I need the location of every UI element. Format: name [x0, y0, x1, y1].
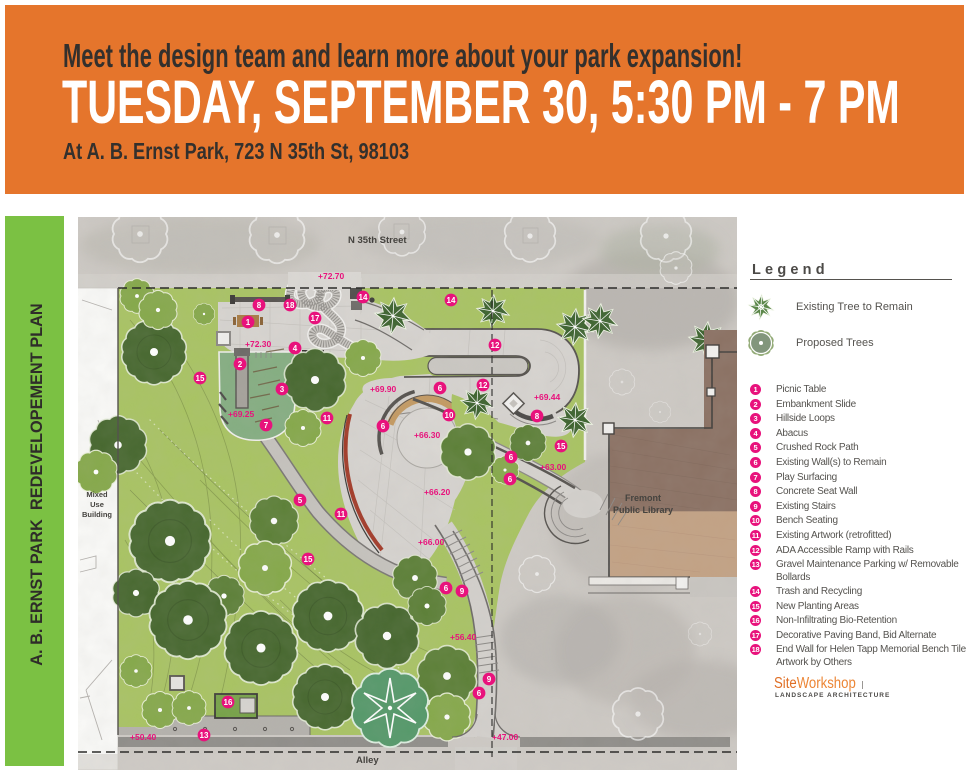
- svg-text:17: 17: [311, 314, 320, 323]
- svg-text:10: 10: [445, 411, 454, 420]
- svg-text:7: 7: [264, 421, 269, 430]
- svg-text:9: 9: [487, 675, 492, 684]
- svg-text:15: 15: [304, 555, 313, 564]
- svg-text:8: 8: [257, 301, 262, 310]
- svg-text:Public Library: Public Library: [613, 505, 673, 515]
- svg-text:1: 1: [246, 318, 251, 327]
- svg-text:6: 6: [477, 689, 482, 698]
- svg-text:Alley: Alley: [356, 755, 379, 766]
- svg-text:N 35th Street: N 35th Street: [348, 235, 407, 246]
- svg-text:+66.00: +66.00: [418, 537, 445, 547]
- svg-text:Fremont: Fremont: [625, 493, 661, 503]
- svg-text:16: 16: [224, 698, 233, 707]
- svg-text:+69.25: +69.25: [228, 409, 255, 419]
- svg-text:14: 14: [359, 293, 368, 302]
- svg-text:9: 9: [460, 587, 465, 596]
- svg-text:13: 13: [200, 731, 209, 740]
- svg-text:Mixed: Mixed: [86, 490, 108, 499]
- svg-text:18: 18: [286, 301, 295, 310]
- svg-text:12: 12: [491, 341, 500, 350]
- svg-text:+69.44: +69.44: [534, 392, 561, 402]
- svg-text:5: 5: [298, 496, 303, 505]
- svg-text:+69.90: +69.90: [370, 384, 397, 394]
- svg-text:+56.40: +56.40: [450, 632, 477, 642]
- svg-text:6: 6: [444, 584, 449, 593]
- svg-text:+50.40: +50.40: [130, 732, 157, 742]
- svg-text:+63.00: +63.00: [540, 462, 567, 472]
- svg-text:2: 2: [238, 360, 243, 369]
- svg-text:+47.00: +47.00: [492, 732, 519, 742]
- svg-text:12: 12: [479, 381, 488, 390]
- svg-text:15: 15: [557, 442, 566, 451]
- svg-text:+66.30: +66.30: [414, 430, 441, 440]
- svg-text:Use: Use: [90, 500, 104, 509]
- svg-text:Building: Building: [82, 510, 112, 519]
- svg-text:+66.20: +66.20: [424, 487, 451, 497]
- svg-text:11: 11: [323, 414, 332, 423]
- svg-text:15: 15: [196, 374, 205, 383]
- svg-text:6: 6: [381, 422, 386, 431]
- svg-text:11: 11: [337, 510, 346, 519]
- svg-text:6: 6: [438, 384, 443, 393]
- svg-text:3: 3: [280, 385, 285, 394]
- svg-text:6: 6: [508, 475, 513, 484]
- svg-text:+72.30: +72.30: [245, 339, 272, 349]
- svg-text:8: 8: [535, 412, 540, 421]
- svg-text:+72.70: +72.70: [318, 271, 345, 281]
- svg-text:14: 14: [447, 296, 456, 305]
- svg-text:6: 6: [509, 453, 514, 462]
- svg-text:4: 4: [293, 344, 298, 353]
